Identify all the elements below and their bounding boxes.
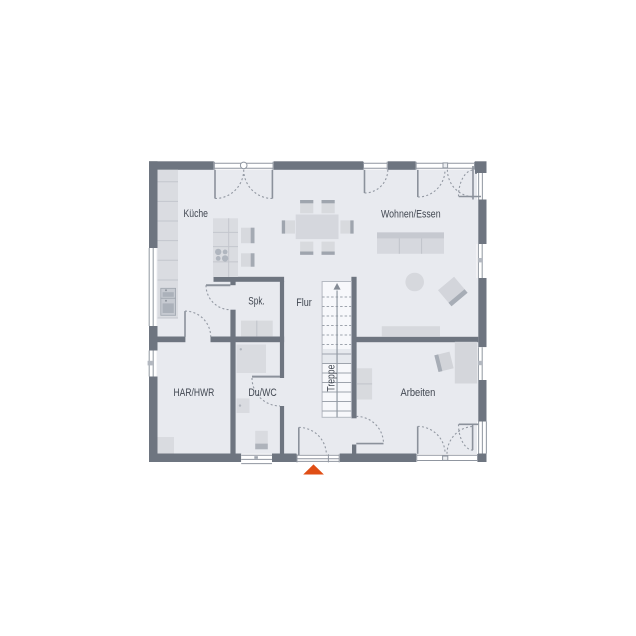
svg-text:Arbeiten: Arbeiten — [401, 387, 436, 399]
svg-text:Flur: Flur — [296, 297, 312, 309]
svg-text:Spk.: Spk. — [248, 295, 264, 307]
svg-text:Treppe: Treppe — [325, 365, 337, 392]
svg-text:Du/WC: Du/WC — [248, 387, 276, 399]
svg-text:HAR/HWR: HAR/HWR — [174, 387, 215, 399]
svg-text:Wohnen/Essen: Wohnen/Essen — [381, 208, 441, 220]
svg-text:Küche: Küche — [184, 208, 209, 220]
